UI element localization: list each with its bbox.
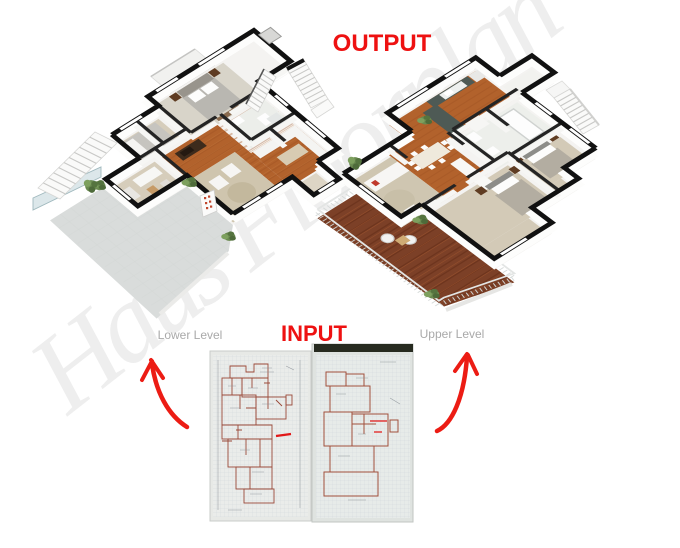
svg-text:INPUT: INPUT xyxy=(281,321,348,346)
svg-text:OUTPUT: OUTPUT xyxy=(333,30,432,57)
svg-text:Upper Level: Upper Level xyxy=(420,327,485,341)
svg-text:Lower Level: Lower Level xyxy=(158,328,223,342)
